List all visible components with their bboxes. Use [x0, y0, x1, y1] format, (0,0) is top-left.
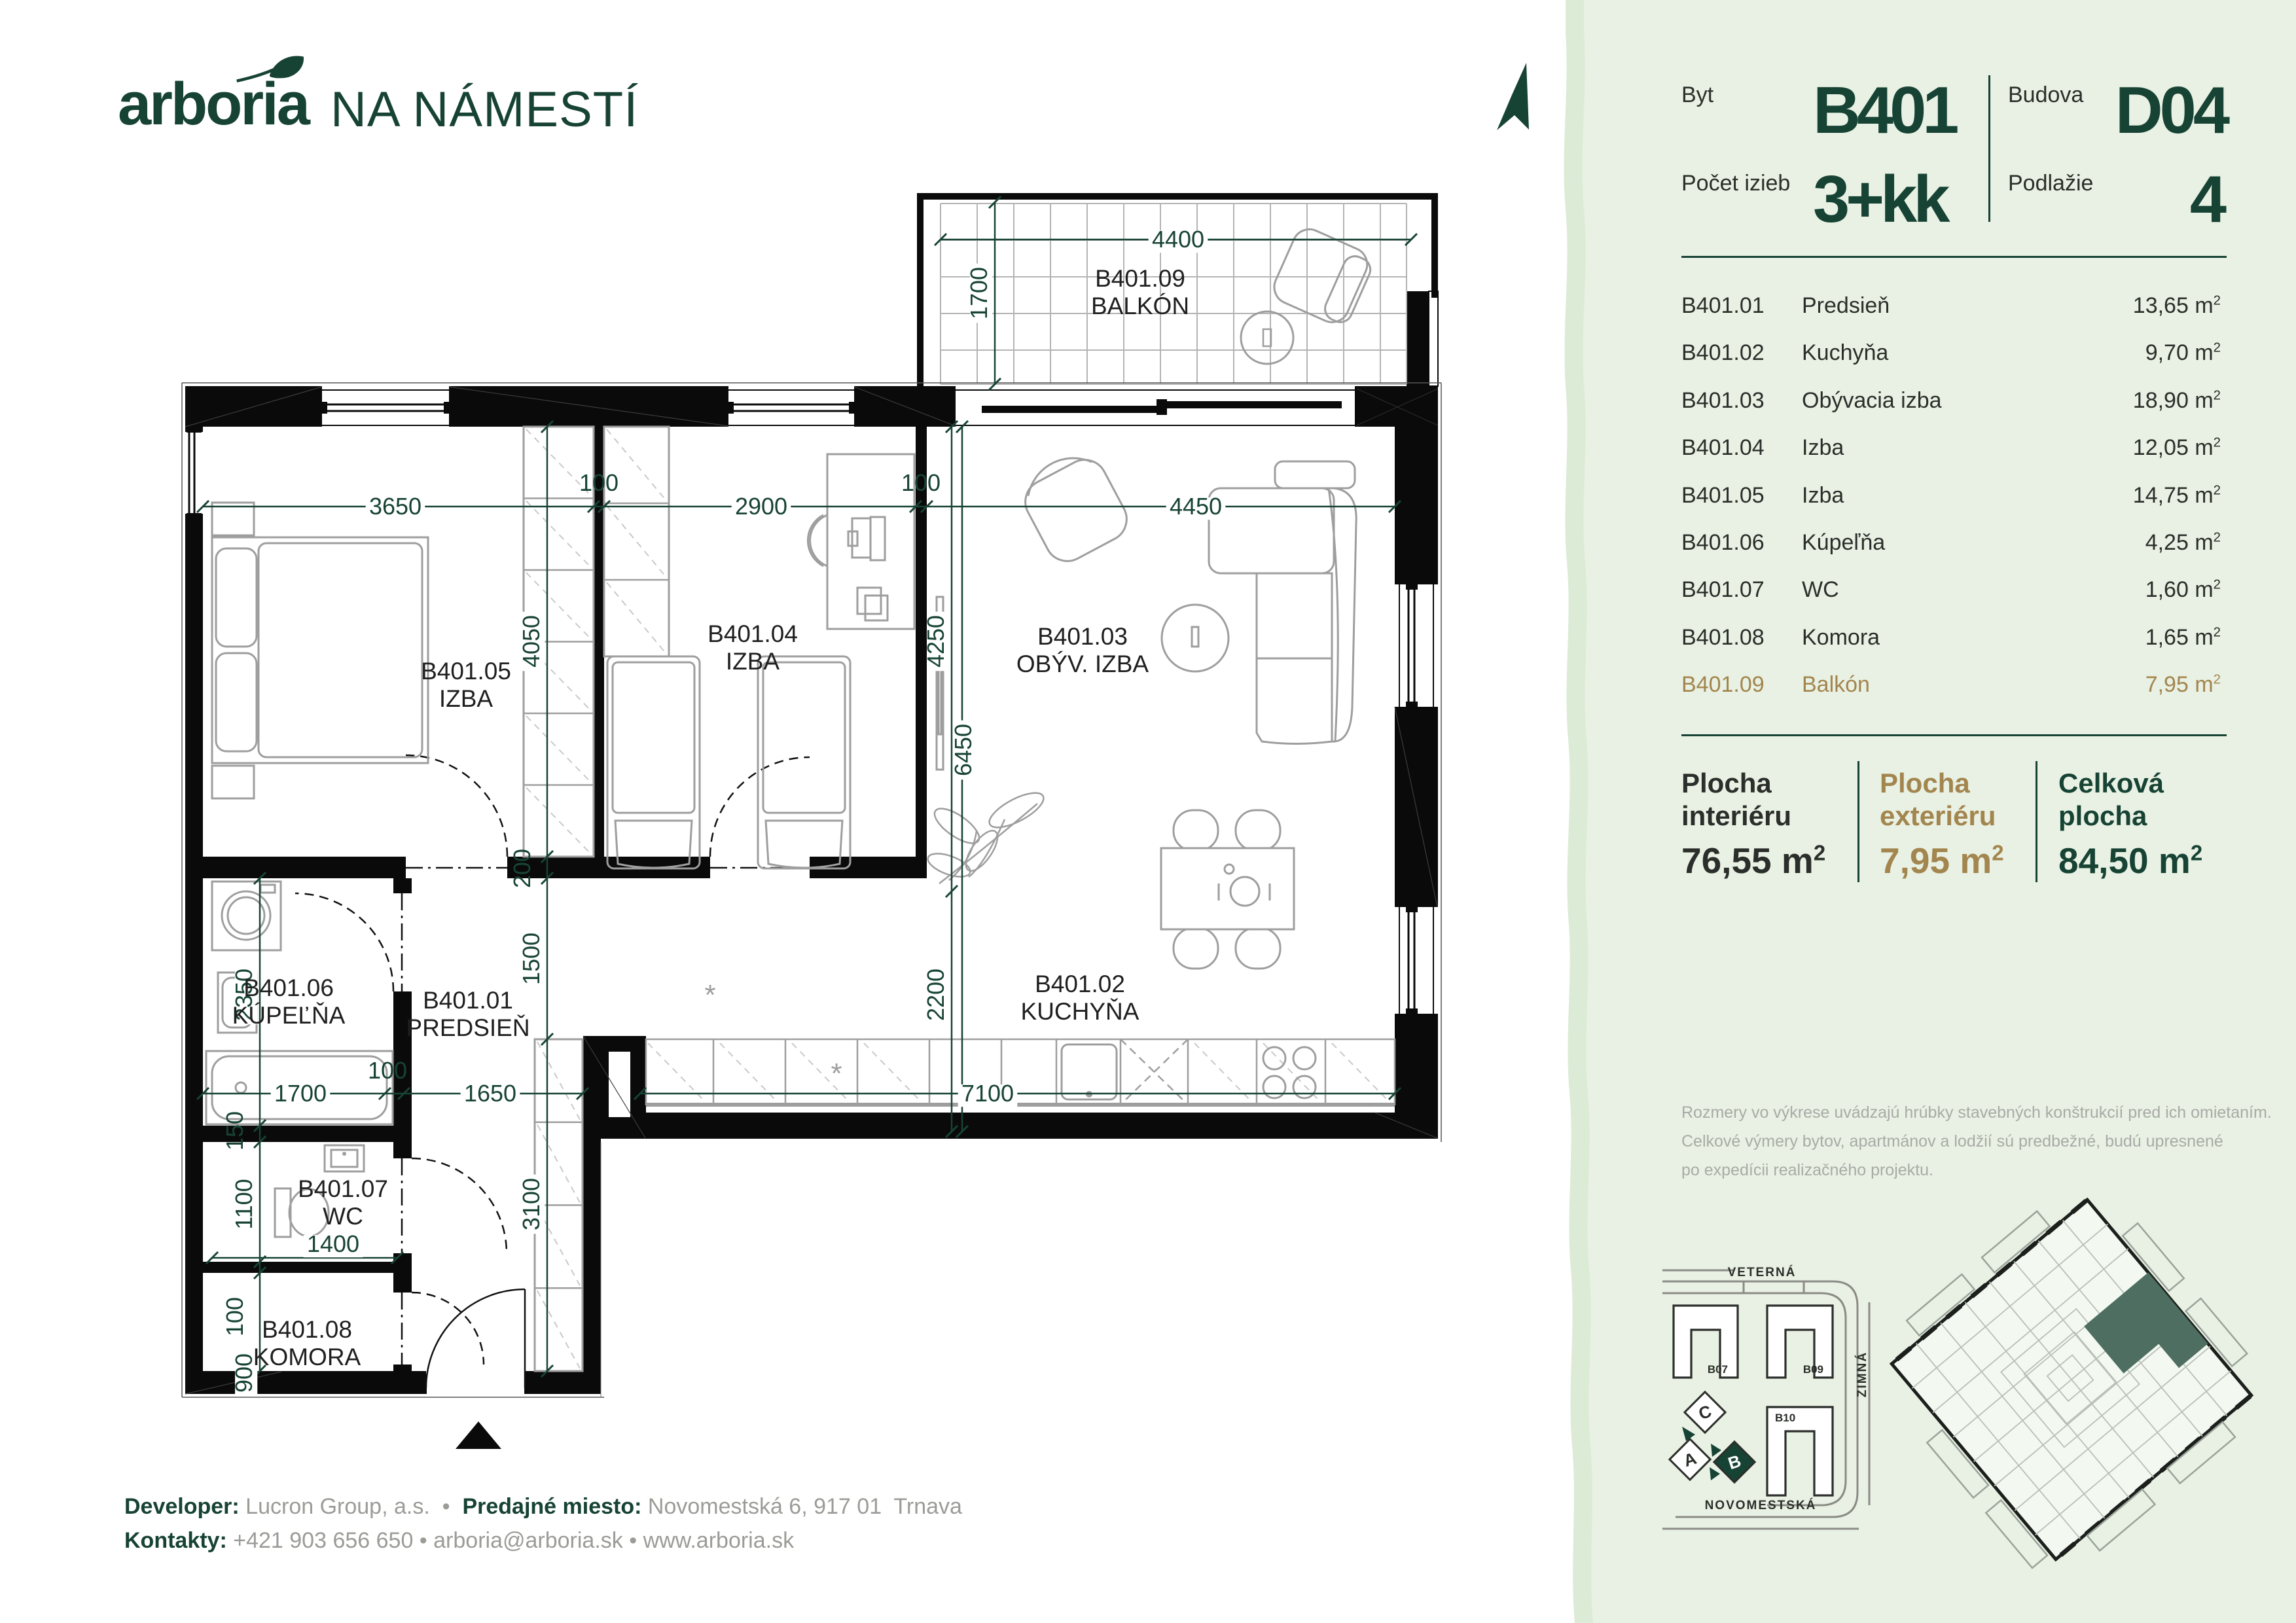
- svg-text:B401.09: B401.09: [1095, 265, 1185, 292]
- svg-text:B401.03: B401.03: [1037, 623, 1128, 650]
- svg-text:*: *: [704, 979, 715, 1011]
- svg-text:B401.02: B401.02: [1035, 971, 1125, 997]
- svg-text:2900: 2900: [735, 493, 787, 520]
- svg-text:B401.05: B401.05: [421, 658, 511, 685]
- svg-text:B401.01: B401.01: [423, 987, 513, 1014]
- svg-text:200: 200: [509, 849, 535, 888]
- svg-text:3650: 3650: [369, 493, 422, 520]
- svg-text:IZBA: IZBA: [726, 648, 780, 675]
- svg-text:KOMORA: KOMORA: [253, 1344, 361, 1370]
- svg-text:100: 100: [368, 1057, 407, 1084]
- svg-text:*: *: [831, 1058, 842, 1090]
- svg-text:1650: 1650: [464, 1080, 516, 1107]
- svg-text:B401.06: B401.06: [243, 974, 334, 1001]
- svg-text:B401.07: B401.07: [298, 1175, 388, 1202]
- svg-text:B401.04: B401.04: [708, 620, 798, 647]
- svg-text:150: 150: [221, 1111, 248, 1150]
- svg-text:NOVOMESTSKÁ: NOVOMESTSKÁ: [1705, 1498, 1817, 1512]
- svg-text:1100: 1100: [230, 1179, 257, 1229]
- svg-text:B09: B09: [1803, 1363, 1823, 1376]
- svg-text:IZBA: IZBA: [439, 685, 493, 712]
- svg-text:4050: 4050: [518, 615, 545, 668]
- svg-text:1700: 1700: [274, 1080, 327, 1107]
- svg-text:B401.08: B401.08: [262, 1316, 352, 1343]
- svg-text:VETERNÁ: VETERNÁ: [1728, 1265, 1797, 1279]
- svg-text:BALKÓN: BALKÓN: [1091, 293, 1189, 319]
- svg-text:WC: WC: [323, 1203, 363, 1230]
- svg-text:100: 100: [579, 469, 619, 496]
- svg-text:1700: 1700: [965, 267, 992, 319]
- svg-text:4250: 4250: [922, 615, 949, 668]
- svg-text:KÚPEĽŇA: KÚPEĽŇA: [232, 1002, 346, 1029]
- svg-text:4450: 4450: [1170, 493, 1222, 520]
- svg-text:PREDSIEŇ: PREDSIEŇ: [406, 1014, 529, 1041]
- svg-text:3100: 3100: [518, 1178, 545, 1230]
- svg-text:100: 100: [901, 469, 941, 496]
- svg-text:KUCHYŇA: KUCHYŇA: [1021, 998, 1139, 1025]
- svg-text:B10: B10: [1775, 1412, 1795, 1424]
- svg-text:7100: 7100: [961, 1080, 1014, 1107]
- svg-text:4400: 4400: [1152, 226, 1204, 253]
- svg-text:OBÝV. IZBA: OBÝV. IZBA: [1016, 651, 1149, 677]
- svg-text:1400: 1400: [307, 1230, 359, 1257]
- svg-text:6450: 6450: [950, 724, 977, 776]
- svg-text:ZIMNÁ: ZIMNÁ: [1855, 1351, 1869, 1397]
- svg-text:1500: 1500: [518, 933, 545, 985]
- svg-text:B07: B07: [1708, 1363, 1728, 1376]
- svg-text:2200: 2200: [922, 969, 949, 1021]
- svg-text:100: 100: [221, 1297, 248, 1336]
